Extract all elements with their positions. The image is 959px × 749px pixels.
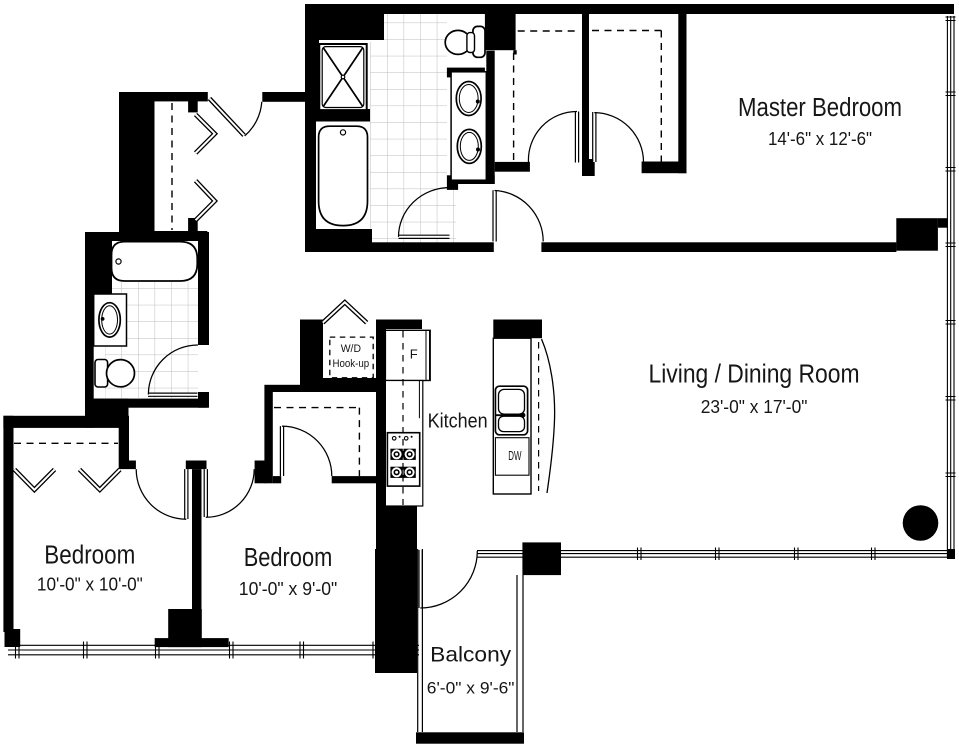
svg-text:Living / Dining Room: Living / Dining Room	[649, 360, 860, 388]
svg-text:Bedroom: Bedroom	[44, 542, 135, 570]
svg-text:Bedroom: Bedroom	[244, 544, 333, 572]
svg-text:23'-0" x 17'-0": 23'-0" x 17'-0"	[701, 397, 808, 417]
svg-text:F: F	[410, 347, 418, 362]
svg-text:6'-0" x 9'-6": 6'-0" x 9'-6"	[427, 680, 515, 698]
svg-text:W/D: W/D	[341, 343, 361, 355]
svg-text:Master Bedroom: Master Bedroom	[738, 94, 902, 122]
svg-text:Kitchen: Kitchen	[428, 411, 488, 433]
svg-text:10'-0" x 9'-0": 10'-0" x 9'-0"	[239, 579, 337, 599]
svg-text:10'-0" x 10'-0": 10'-0" x 10'-0"	[37, 575, 143, 595]
svg-text:14'-6" x 12'-6": 14'-6" x 12'-6"	[768, 129, 872, 149]
svg-text:Hook-up: Hook-up	[333, 358, 370, 370]
svg-text:Balcony: Balcony	[430, 644, 511, 667]
svg-text:DW: DW	[508, 449, 521, 463]
